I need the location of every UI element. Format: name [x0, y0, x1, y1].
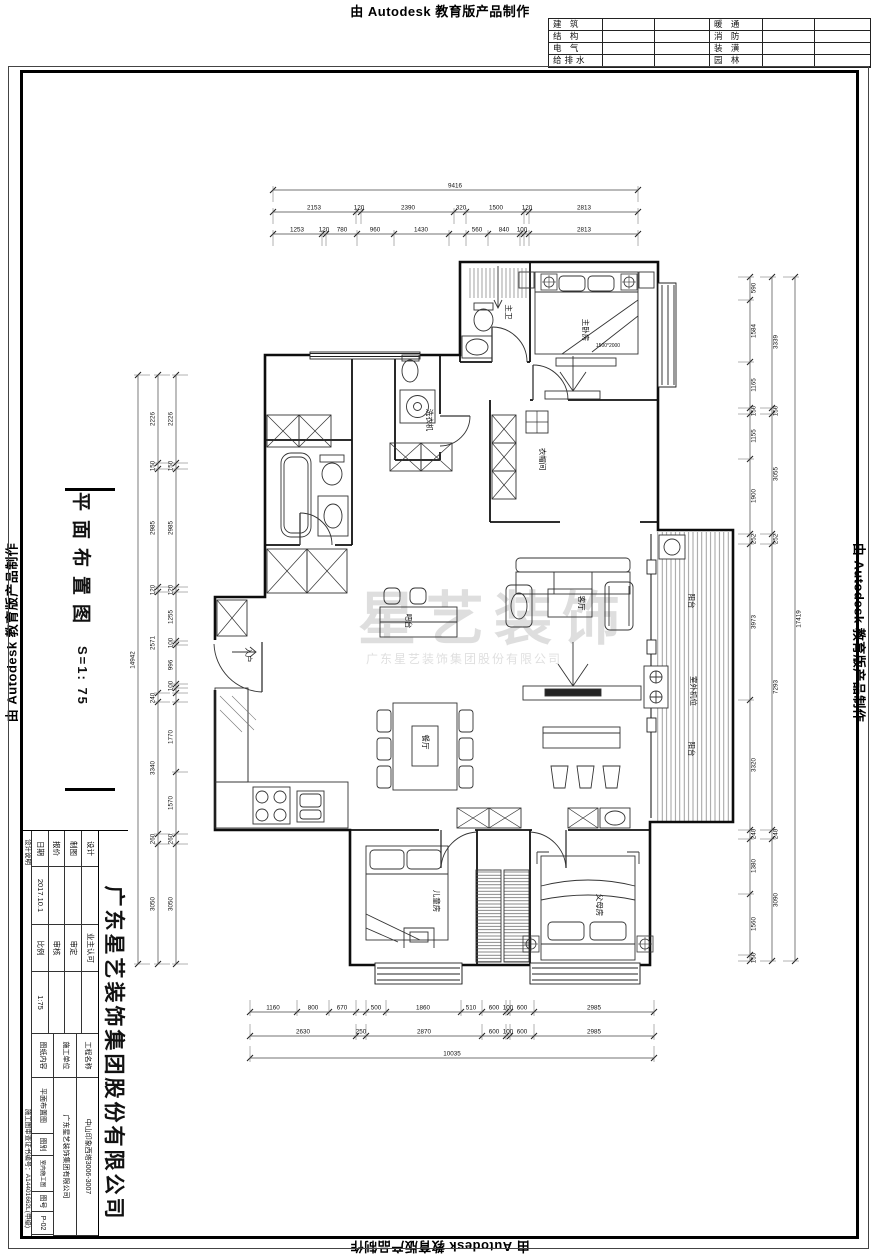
- svg-text:120: 120: [150, 584, 157, 595]
- title-block-project-grid: 工程名称中山印象西塔3006-3007施工单位广东星艺装饰集团有限公司图纸内容平…: [31, 1034, 98, 1236]
- svg-text:590: 590: [751, 282, 758, 293]
- title-block-company: 广东星艺装饰集团股份有限公司: [98, 831, 128, 1236]
- svg-text:150: 150: [751, 405, 758, 416]
- title-block-cell: 平面布置图: [32, 1078, 53, 1134]
- title-block-cell: [65, 972, 82, 1034]
- svg-text:100: 100: [168, 680, 175, 691]
- svg-text:1500*2000: 1500*2000: [596, 343, 620, 349]
- svg-text:1770: 1770: [168, 730, 175, 745]
- svg-text:入户: 入户: [244, 648, 254, 663]
- svg-text:1430: 1430: [414, 227, 429, 234]
- svg-text:3050: 3050: [168, 897, 175, 912]
- svg-text:1253: 1253: [290, 227, 305, 234]
- title-block-cert: 施工图审查证书编号：A14401662L(甲级): [23, 1109, 31, 1228]
- title-block-cell: 业主认可: [81, 925, 98, 972]
- svg-text:150: 150: [168, 460, 175, 471]
- title-block-cell: 日期: [31, 831, 48, 867]
- svg-text:120: 120: [319, 227, 330, 234]
- svg-text:1380: 1380: [751, 859, 758, 874]
- svg-text:3090: 3090: [773, 893, 780, 908]
- svg-text:560: 560: [472, 227, 483, 234]
- svg-text:100: 100: [168, 637, 175, 648]
- title-block-note: 设计说明: [23, 839, 31, 865]
- svg-text:120: 120: [522, 205, 533, 212]
- svg-text:2390: 2390: [401, 205, 416, 212]
- title-block-cell: 1:75: [31, 972, 48, 1034]
- svg-text:2153: 2153: [307, 205, 322, 212]
- title-block-cell: [65, 867, 82, 925]
- svg-text:2813: 2813: [577, 205, 592, 212]
- svg-text:父母房: 父母房: [595, 894, 605, 917]
- svg-text:600: 600: [489, 1005, 500, 1012]
- title-block-cell: [48, 972, 65, 1034]
- title-block-cell: 比例: [31, 925, 48, 972]
- svg-text:100: 100: [517, 227, 528, 234]
- svg-text:100: 100: [503, 1029, 514, 1036]
- svg-text:2571: 2571: [150, 636, 157, 651]
- svg-text:800: 800: [308, 1005, 319, 1012]
- title-block-cell: 中山印象西塔3006-3007: [77, 1078, 98, 1236]
- svg-text:3050: 3050: [150, 897, 157, 912]
- svg-text:1560: 1560: [751, 917, 758, 932]
- svg-text:150: 150: [751, 952, 758, 963]
- title-block: 广东星艺装饰集团股份有限公司 设计业主认可制图审定报价审核日期2017.10.1…: [23, 830, 128, 1236]
- title-block-cell: 图号: [32, 1192, 53, 1212]
- svg-text:阳台: 阳台: [687, 594, 697, 609]
- furniture: [215, 266, 685, 962]
- svg-text:1155: 1155: [751, 429, 758, 443]
- svg-text:9416: 9416: [448, 183, 463, 190]
- svg-text:主卫: 主卫: [504, 305, 514, 320]
- svg-text:1160: 1160: [266, 1005, 280, 1012]
- title-block-cell: 施工单位: [54, 1034, 75, 1078]
- svg-text:儿童房: 儿童房: [432, 890, 442, 913]
- title-block-cell: 广东星艺装饰集团有限公司: [54, 1078, 75, 1236]
- svg-text:2985: 2985: [150, 521, 157, 536]
- svg-text:150: 150: [150, 460, 157, 471]
- title-block-cell: 制图: [65, 831, 82, 867]
- svg-text:1860: 1860: [416, 1005, 431, 1012]
- title-block-cell: 报价: [48, 831, 65, 867]
- svg-text:室外机位: 室外机位: [689, 676, 699, 706]
- svg-text:17419: 17419: [796, 610, 803, 628]
- svg-text:2985: 2985: [587, 1005, 602, 1012]
- svg-text:1165: 1165: [751, 378, 758, 392]
- svg-text:100: 100: [503, 1005, 514, 1012]
- svg-text:洗衣机: 洗衣机: [425, 409, 435, 432]
- svg-text:3340: 3340: [150, 761, 157, 776]
- svg-text:2226: 2226: [168, 412, 175, 427]
- svg-text:250: 250: [356, 1029, 367, 1036]
- svg-text:2870: 2870: [417, 1029, 432, 1036]
- title-block-cell: 工程名称: [77, 1034, 98, 1078]
- svg-text:1255: 1255: [168, 610, 175, 625]
- svg-text:252: 252: [751, 533, 758, 544]
- svg-text:500: 500: [371, 1005, 382, 1012]
- title-block-cell: 2017.10.1: [31, 867, 48, 925]
- floor-plan: 9416215312023903201500120281312531207809…: [0, 0, 878, 1254]
- svg-text:510: 510: [466, 1005, 477, 1012]
- svg-text:960: 960: [370, 227, 381, 234]
- svg-text:150: 150: [773, 405, 780, 416]
- svg-text:7293: 7293: [773, 680, 780, 695]
- svg-text:240: 240: [150, 692, 157, 703]
- svg-text:3973: 3973: [751, 615, 758, 630]
- svg-text:3339: 3339: [773, 335, 780, 350]
- title-block-cell: 室内施工图: [32, 1156, 53, 1192]
- svg-text:600: 600: [489, 1029, 500, 1036]
- svg-text:1500: 1500: [489, 205, 504, 212]
- title-block-cell: 图别: [32, 1134, 53, 1156]
- svg-text:600: 600: [517, 1029, 528, 1036]
- svg-text:260: 260: [168, 833, 175, 844]
- lamp-symbols: [523, 274, 653, 952]
- title-block-footer: 设计说明 施工图审查证书编号：A14401662L(甲级): [23, 831, 31, 1236]
- svg-text:餐厅: 餐厅: [421, 735, 430, 750]
- svg-text:2985: 2985: [587, 1029, 602, 1036]
- svg-text:主卧房: 主卧房: [581, 319, 591, 342]
- svg-text:120: 120: [168, 584, 175, 595]
- svg-text:2226: 2226: [150, 412, 157, 427]
- svg-text:600: 600: [517, 1005, 528, 1012]
- title-block-cell: 审定: [65, 925, 82, 972]
- svg-text:840: 840: [499, 227, 510, 234]
- svg-text:14942: 14942: [130, 651, 137, 669]
- svg-text:2985: 2985: [168, 521, 175, 536]
- svg-text:2630: 2630: [296, 1029, 311, 1036]
- interior-walls: [265, 262, 658, 965]
- svg-text:1570: 1570: [168, 796, 175, 811]
- svg-text:240: 240: [751, 828, 758, 839]
- svg-text:10035: 10035: [443, 1051, 461, 1058]
- svg-text:客厅: 客厅: [577, 596, 587, 611]
- svg-text:240: 240: [773, 828, 780, 839]
- svg-text:2813: 2813: [577, 227, 592, 234]
- title-block-cell: [81, 867, 98, 925]
- svg-text:252: 252: [773, 533, 780, 544]
- svg-text:3320: 3320: [751, 758, 758, 773]
- title-block-cell: 审核: [48, 925, 65, 972]
- title-block-cell: [81, 972, 98, 1034]
- svg-text:阳台: 阳台: [687, 742, 697, 757]
- title-block-cell: P-02: [32, 1212, 53, 1235]
- svg-text:1584: 1584: [751, 324, 758, 339]
- svg-text:衣帽间: 衣帽间: [538, 448, 548, 471]
- title-block-sign-grid: 设计业主认可制图审定报价审核日期2017.10.1比例1:75: [31, 831, 98, 1034]
- room-label-layer: 主卫主卧房洗衣机衣帽间入户吧台客厅餐厅阳台室外机位阳台儿童房父母房1500*20…: [244, 305, 699, 917]
- svg-text:1900: 1900: [751, 489, 758, 504]
- svg-text:780: 780: [337, 227, 348, 234]
- title-block-cell: 图纸内容: [32, 1034, 53, 1078]
- svg-text:吧台: 吧台: [404, 614, 414, 629]
- svg-text:3055: 3055: [773, 467, 780, 482]
- title-block-cell: 设计: [81, 831, 98, 867]
- svg-text:996: 996: [168, 659, 175, 670]
- title-block-cell: [48, 867, 65, 925]
- svg-text:670: 670: [337, 1005, 348, 1012]
- svg-text:260: 260: [150, 833, 157, 844]
- svg-text:120: 120: [354, 205, 365, 212]
- svg-text:320: 320: [456, 205, 467, 212]
